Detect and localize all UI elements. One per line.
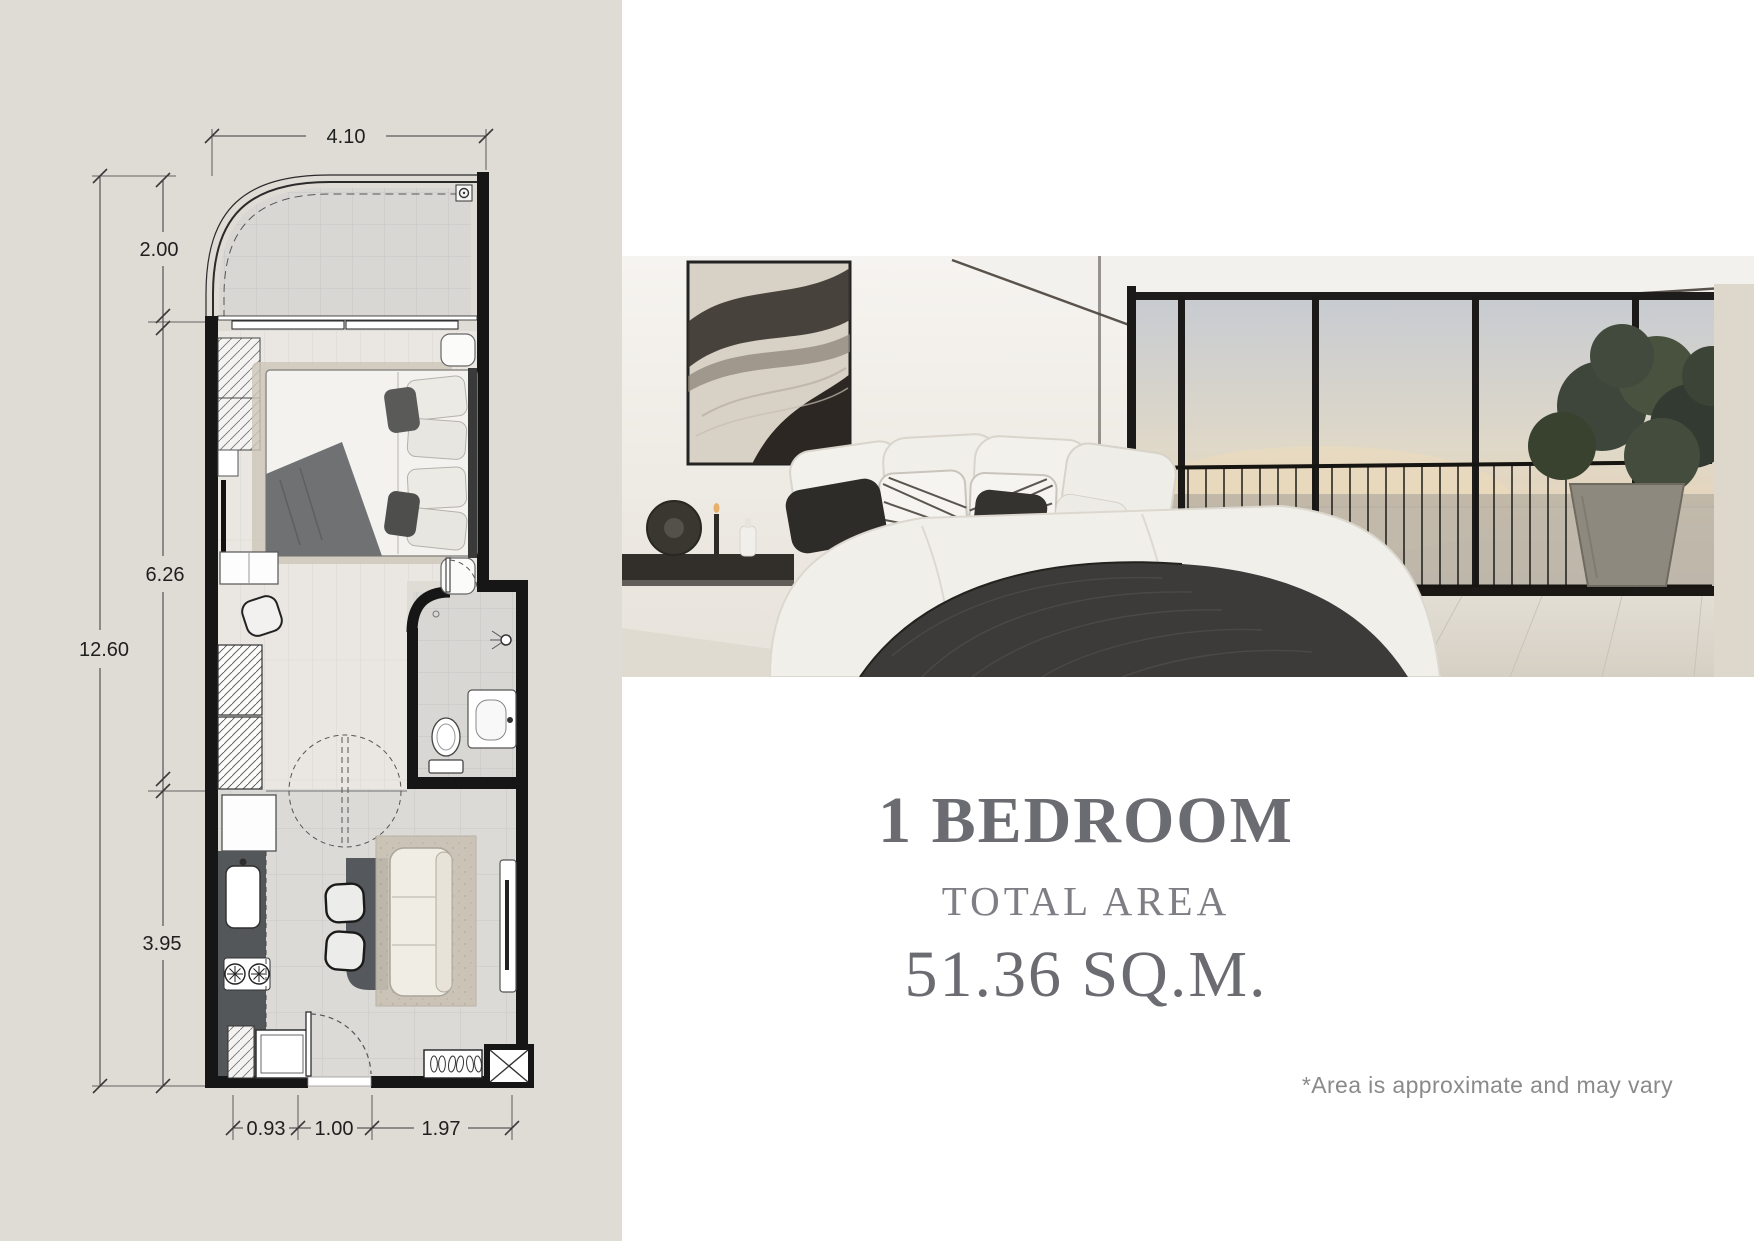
pillow-icon — [383, 386, 421, 434]
info-block: 1 BEDROOM TOTAL AREA 51.36 SQ.M. — [721, 788, 1451, 1008]
headboard-icon — [468, 368, 477, 558]
nightstand-icon — [441, 334, 475, 366]
candle-icon — [714, 514, 719, 554]
entry-door — [306, 1012, 311, 1076]
bathroom-door — [446, 558, 450, 592]
balcony-floor — [219, 188, 471, 318]
dim-bottom-c-label: 1.97 — [422, 1118, 461, 1140]
floor-plan: 4.10 2.00 6.26 12.60 3.95 0.93 1.00 1.97 — [0, 0, 622, 1241]
chair-icon — [325, 931, 366, 972]
dim-total-label: 12.60 — [79, 639, 129, 661]
tv-icon — [221, 480, 226, 552]
right-wall — [1714, 284, 1754, 677]
washer-icon — [256, 1030, 308, 1078]
shower-icon — [501, 635, 511, 645]
shelf-icon — [218, 450, 238, 476]
bedroom-photo — [622, 256, 1754, 677]
cabinet-icon — [222, 795, 276, 851]
dim-living-label: 3.95 — [143, 933, 182, 955]
chair-icon — [325, 883, 365, 923]
dim-bottom-b-label: 1.00 — [315, 1118, 354, 1140]
balcony-door — [218, 316, 477, 329]
dim-bottom-a-label: 0.93 — [247, 1118, 286, 1140]
dim-bedroom-label: 6.26 — [146, 564, 185, 586]
area-disclaimer: *Area is approximate and may vary — [1302, 1072, 1673, 1099]
unit-title: 1 BEDROOM — [721, 788, 1451, 854]
dim-balcony-label: 2.00 — [140, 239, 179, 261]
area-value: 51.36 SQ.M. — [721, 942, 1451, 1008]
wardrobe-icon — [218, 717, 262, 789]
total-area-label: TOTAL AREA — [721, 881, 1451, 922]
kitchen-sink-icon — [226, 866, 260, 928]
dim-top-label: 4.10 — [327, 126, 366, 148]
hatch-box — [228, 1026, 254, 1078]
plan-panel: 4.10 2.00 6.26 12.60 3.95 0.93 1.00 1.97 — [0, 0, 622, 1241]
pillow-icon — [383, 490, 421, 538]
bedroom-photo-render — [622, 256, 1754, 677]
artwork-icon — [688, 262, 850, 464]
bottle-icon — [740, 526, 756, 556]
wardrobe-icon — [218, 645, 262, 715]
